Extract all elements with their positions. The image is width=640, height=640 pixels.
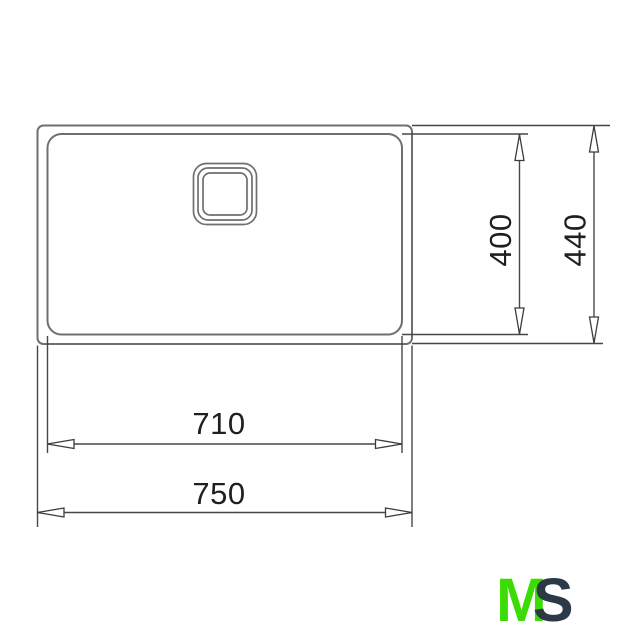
arrow-up-icon [590, 126, 599, 152]
technical-drawing-canvas: 400 440 710 750 MS [0, 0, 640, 640]
drain-outline-group [194, 164, 257, 225]
arrow-down-icon [590, 317, 599, 343]
dimension-overall-depth: 440 [558, 126, 599, 343]
dimension-bowl-depth: 400 [483, 135, 524, 335]
arrow-right-icon [376, 440, 403, 449]
logo-letter-s: S [533, 566, 574, 634]
arrow-down-icon [515, 308, 524, 334]
dim-label-overall-width: 750 [192, 476, 245, 511]
drain-inner-outline [203, 173, 247, 215]
dim-label-bowl-width: 710 [192, 406, 245, 441]
dim-label-bowl-depth: 400 [483, 213, 518, 266]
brand-logo: MS [496, 570, 574, 631]
dim-label-overall-depth: 440 [558, 213, 593, 266]
drain-flange-outline [198, 168, 252, 220]
arrow-left-icon [38, 508, 65, 517]
arrow-right-icon [386, 508, 413, 517]
dimension-bowl-width: 710 [48, 406, 403, 449]
extension-lines [38, 126, 611, 528]
arrow-left-icon [48, 440, 75, 449]
dimension-overall-width: 750 [38, 476, 413, 517]
sink-outline-group [38, 126, 413, 345]
sink-dimension-drawing: 400 440 710 750 [0, 0, 640, 640]
sink-outer-rim-outline [38, 126, 413, 345]
arrow-up-icon [515, 135, 524, 161]
